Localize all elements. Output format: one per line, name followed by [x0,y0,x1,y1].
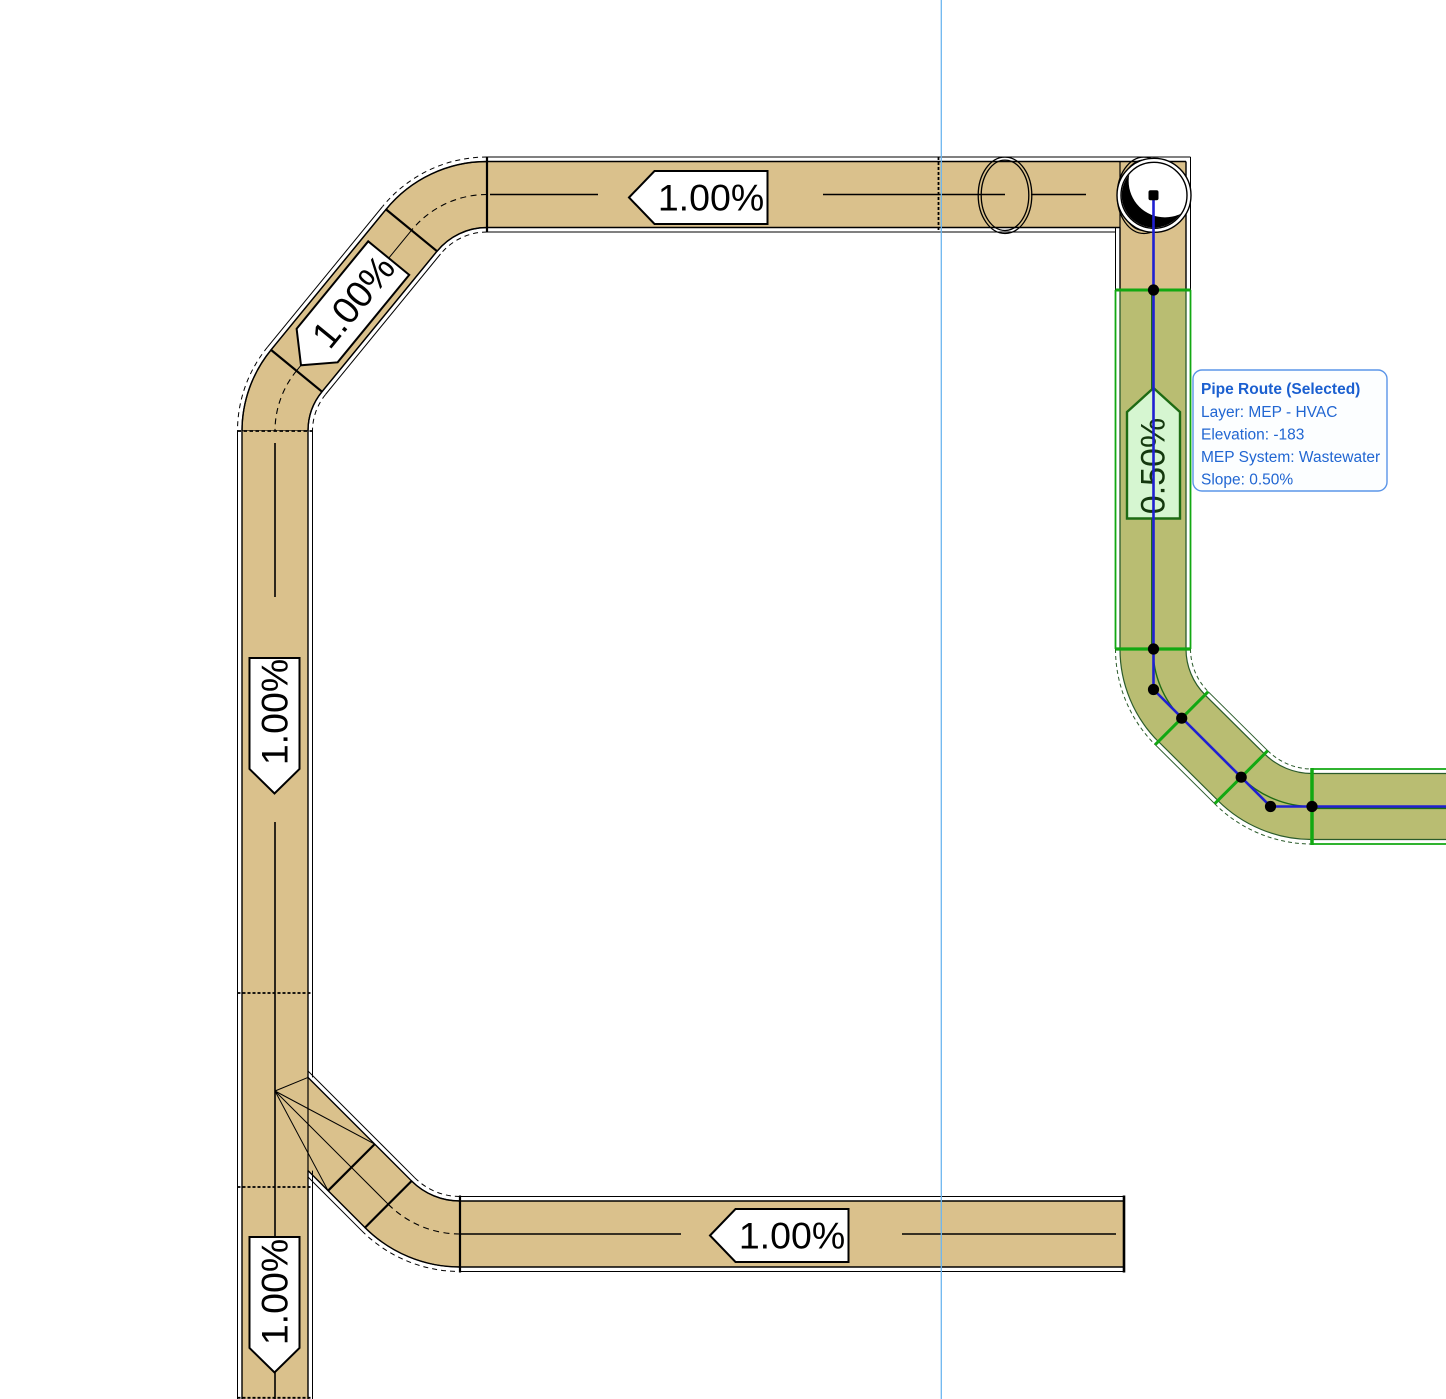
svg-text:Elevation: -183: Elevation: -183 [1201,427,1304,444]
svg-text:1.00%: 1.00% [739,1215,845,1257]
svg-text:Pipe Route (Selected): Pipe Route (Selected) [1201,381,1360,398]
svg-text:1.00%: 1.00% [254,659,296,765]
svg-text:Slope: 0.50%: Slope: 0.50% [1201,472,1293,489]
svg-text:MEP System: Wastewater: MEP System: Wastewater [1201,449,1380,466]
svg-text:Layer: MEP - HVAC: Layer: MEP - HVAC [1201,404,1337,421]
svg-text:1.00%: 1.00% [658,177,764,219]
svg-text:1.00%: 1.00% [254,1239,296,1345]
